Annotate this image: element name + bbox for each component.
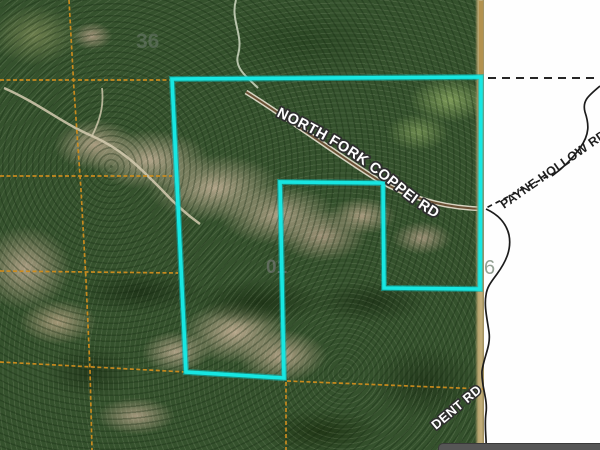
aerial-imagery[interactable] — [0, 0, 484, 450]
map-canvas-blank — [484, 0, 600, 450]
bottom-panel-edge[interactable] — [438, 443, 600, 450]
map-viewport[interactable]: 36 01 6 — [0, 0, 600, 450]
edge-road-strip — [475, 0, 484, 450]
terrain-texture — [0, 0, 484, 450]
